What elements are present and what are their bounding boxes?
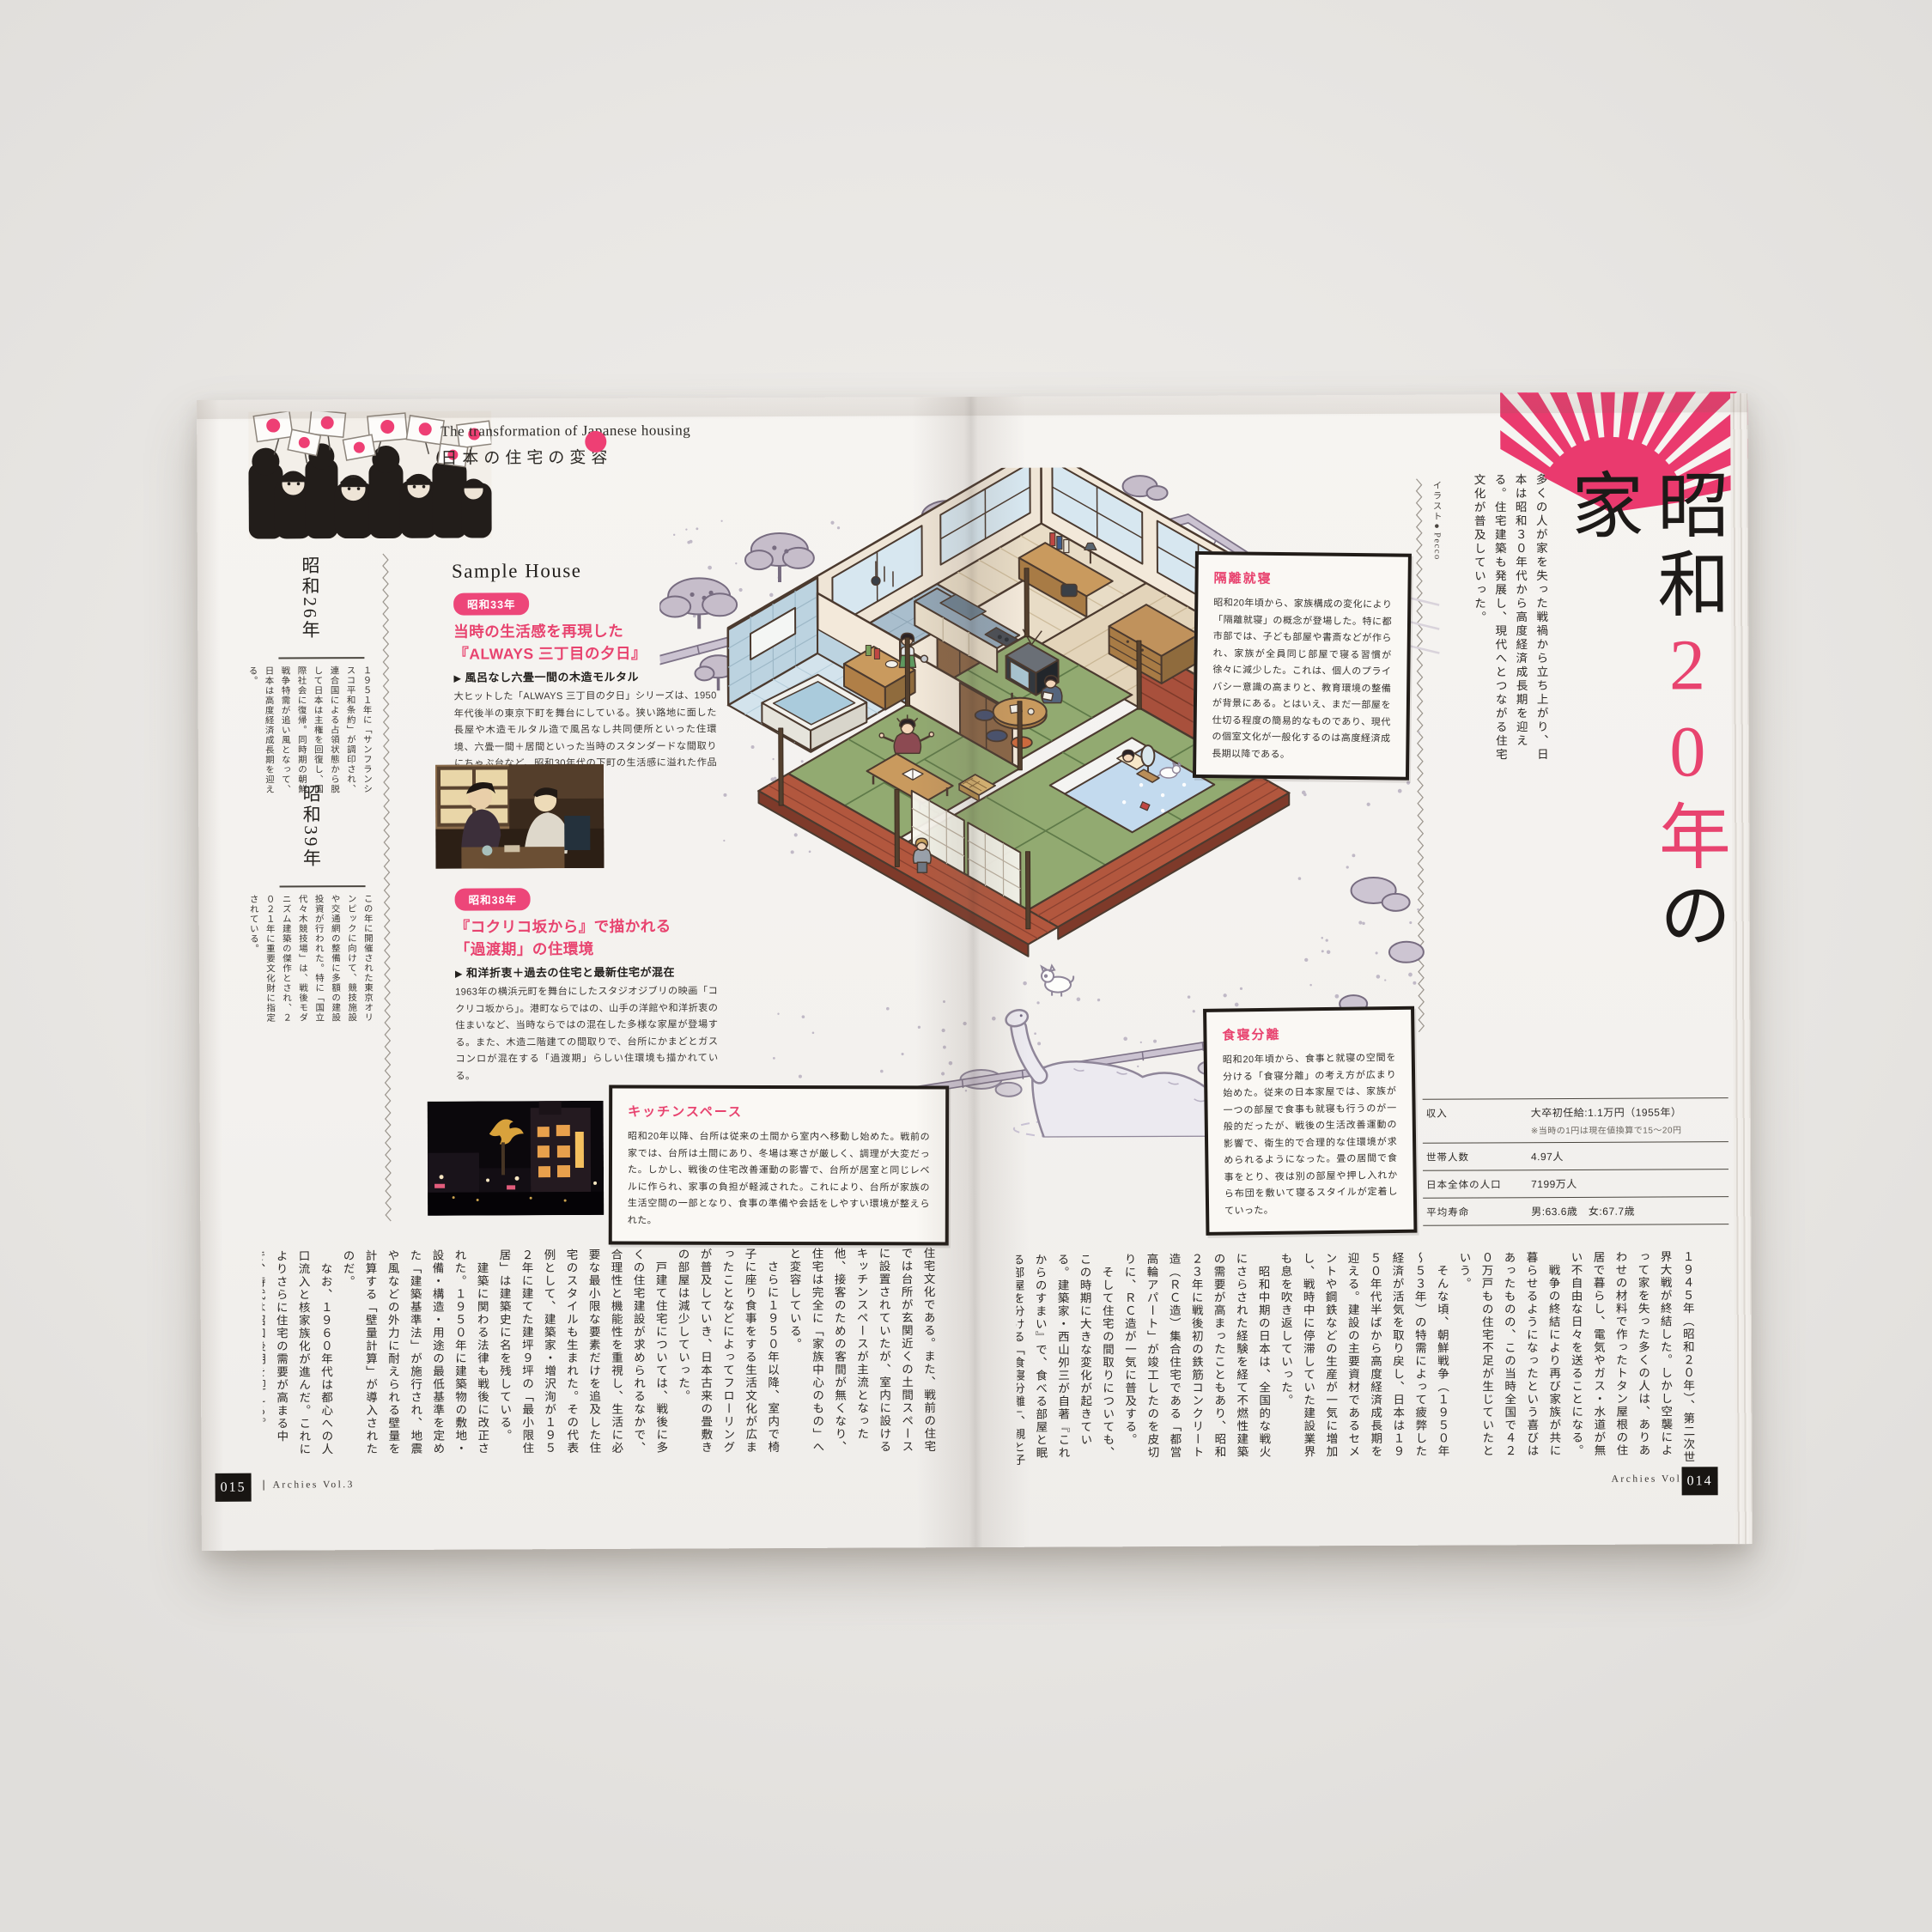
callout-title: キッチンスペース [628,1103,930,1121]
year-badge-showa33: 昭和33年 [453,592,530,615]
row-value: 4.97人 [1531,1148,1727,1163]
callout-title: 隔離就寝 [1213,568,1392,588]
sidebar-rule [280,885,366,887]
sample-house-heading: Sample House [452,560,582,583]
year-badge-showa38: 昭和38年 [455,888,532,910]
left-page-edge [197,400,224,1551]
pink-dot-ornament [585,431,606,453]
white-dog [1042,965,1073,996]
magazine-brand-left: Archies Vol.3 [264,1479,355,1490]
headline-line2: 『ALWAYS 三丁目の夕日』 [453,645,647,663]
movie-still-always-sunset [435,764,605,869]
callout-body: 昭和20年以降、台所は従来の土間から室内へ移動し始めた。戦前の家では、台所は土間… [628,1129,930,1230]
triangle-bullet-icon: ▶ [453,674,461,684]
row-value: 大卒初任給:1.1万円（1955年） ※当時の1円は現在値換算で15～20円 [1531,1104,1727,1136]
row-label: 収入 [1426,1105,1531,1121]
article-body-left-page: 住宅文化である。また、戦前の住宅では台所が玄関近くの土間スペースに設置されていた… [262,1247,939,1467]
stats-table: 収入 大卒初任給:1.1万円（1955年） ※当時の1円は現在値換算で15～20… [1423,1097,1729,1226]
callout-body: 昭和20年頃から、食事と就寝の空間を分ける「食寝分離」の考え方が広まり始めた。従… [1223,1050,1399,1220]
table-row: 平均寿命 男:63.6歳 女:67.7歳 [1423,1196,1728,1226]
headline-line1: 『コクリコ坂から』で描かれる [455,918,671,936]
movie-still-night-street [428,1101,605,1216]
row-value: 7199万人 [1531,1176,1727,1191]
page-number-left: 015 [216,1473,252,1502]
section-title-english: The transformation of Japanese housing [440,422,690,440]
callout-box-kakurishushin: 隔離就寝 昭和20年頃から、家族構成の変化により「隔離就寝」の概念が登場した。特… [1193,551,1412,781]
headline-line1: 当時の生活感を再現した [453,623,623,641]
row-label: 世帯人数 [1426,1149,1531,1164]
zigzag-divider [380,554,394,1224]
garden-bushes [1340,878,1425,1012]
feature-title-showa20-house: 昭和20年の家 [1557,467,1731,1000]
article-body-right-page: １９４５年（昭和２０年）、第二次世界大戦が終結した。しかし空襲によって家を失った… [1016,1250,1698,1469]
row-label: 日本全体の人口 [1426,1176,1531,1192]
table-row: 日本全体の人口 7199万人 [1423,1169,1728,1198]
sidebar-era-showa39-body: この年に開催された東京オリンピックに向けて、競技施設や交通網の整備に多額の建設投… [264,894,377,1029]
sidebar-era-showa39-title: 昭和39年 [298,784,325,896]
row-label: 平均寿命 [1426,1204,1531,1219]
row-note: ※当時の1円は現在値換算で15～20円 [1531,1122,1727,1136]
magazine-spread: The transformation of Japanese housing 日… [197,393,1753,1551]
photo-of-magazine-spread: { "colors":{"accent_pink":"#e8436f","fan… [0,0,1932,1932]
title-part-black: 昭和 [1646,467,1727,625]
row-value: 男:63.6歳 女:67.7歳 [1531,1203,1727,1218]
headline-line2: 「過渡期」の住環境 [455,940,594,958]
table-row: 収入 大卒初任給:1.1万円（1955年） ※当時の1円は現在値換算で15～20… [1423,1097,1728,1143]
callout-title: 食寝分離 [1222,1024,1395,1044]
sample-item1-headline: 当時の生活感を再現した 『ALWAYS 三丁目の夕日』 [453,620,647,665]
sample-item2-headline: 『コクリコ坂から』で描かれる 「過渡期」の住環境 [455,915,671,961]
sample-item2-subtitle: ▶和洋折衷＋過去の住宅と最新住宅が混在 [455,963,675,981]
sidebar-rule [278,657,364,659]
triangle-bullet-icon: ▶ [455,969,463,980]
title-part-pink: 20年 [1647,625,1728,878]
sidebar-era-showa26-title: 昭和26年 [297,556,324,667]
callout-body: 昭和20年頃から、家族構成の変化により「隔離就寝」の概念が登場した。特に都市部で… [1212,595,1392,764]
dinosaur-sculpture [1004,1006,1224,1139]
callout-box-shokushinbunri: 食寝分離 昭和20年頃から、食事と就寝の空間を分ける「食寝分離」の考え方が広まり… [1203,1006,1417,1236]
sidebar-era-showa26-body: １９５１年に「サンフランシスコ平和条約」が調印され、連合国による占領状態から脱し… [263,665,375,800]
table-row: 世帯人数 4.97人 [1423,1141,1728,1170]
callout-box-kitchen-space: キッチンスペース 昭和20年以降、台所は従来の土間から室内へ移動し始めた。戦前の… [609,1084,949,1245]
page-number-right: 014 [1682,1467,1718,1495]
sample-item1-subtitle: ▶風呂なし六畳一間の木造モルタル [453,668,639,685]
